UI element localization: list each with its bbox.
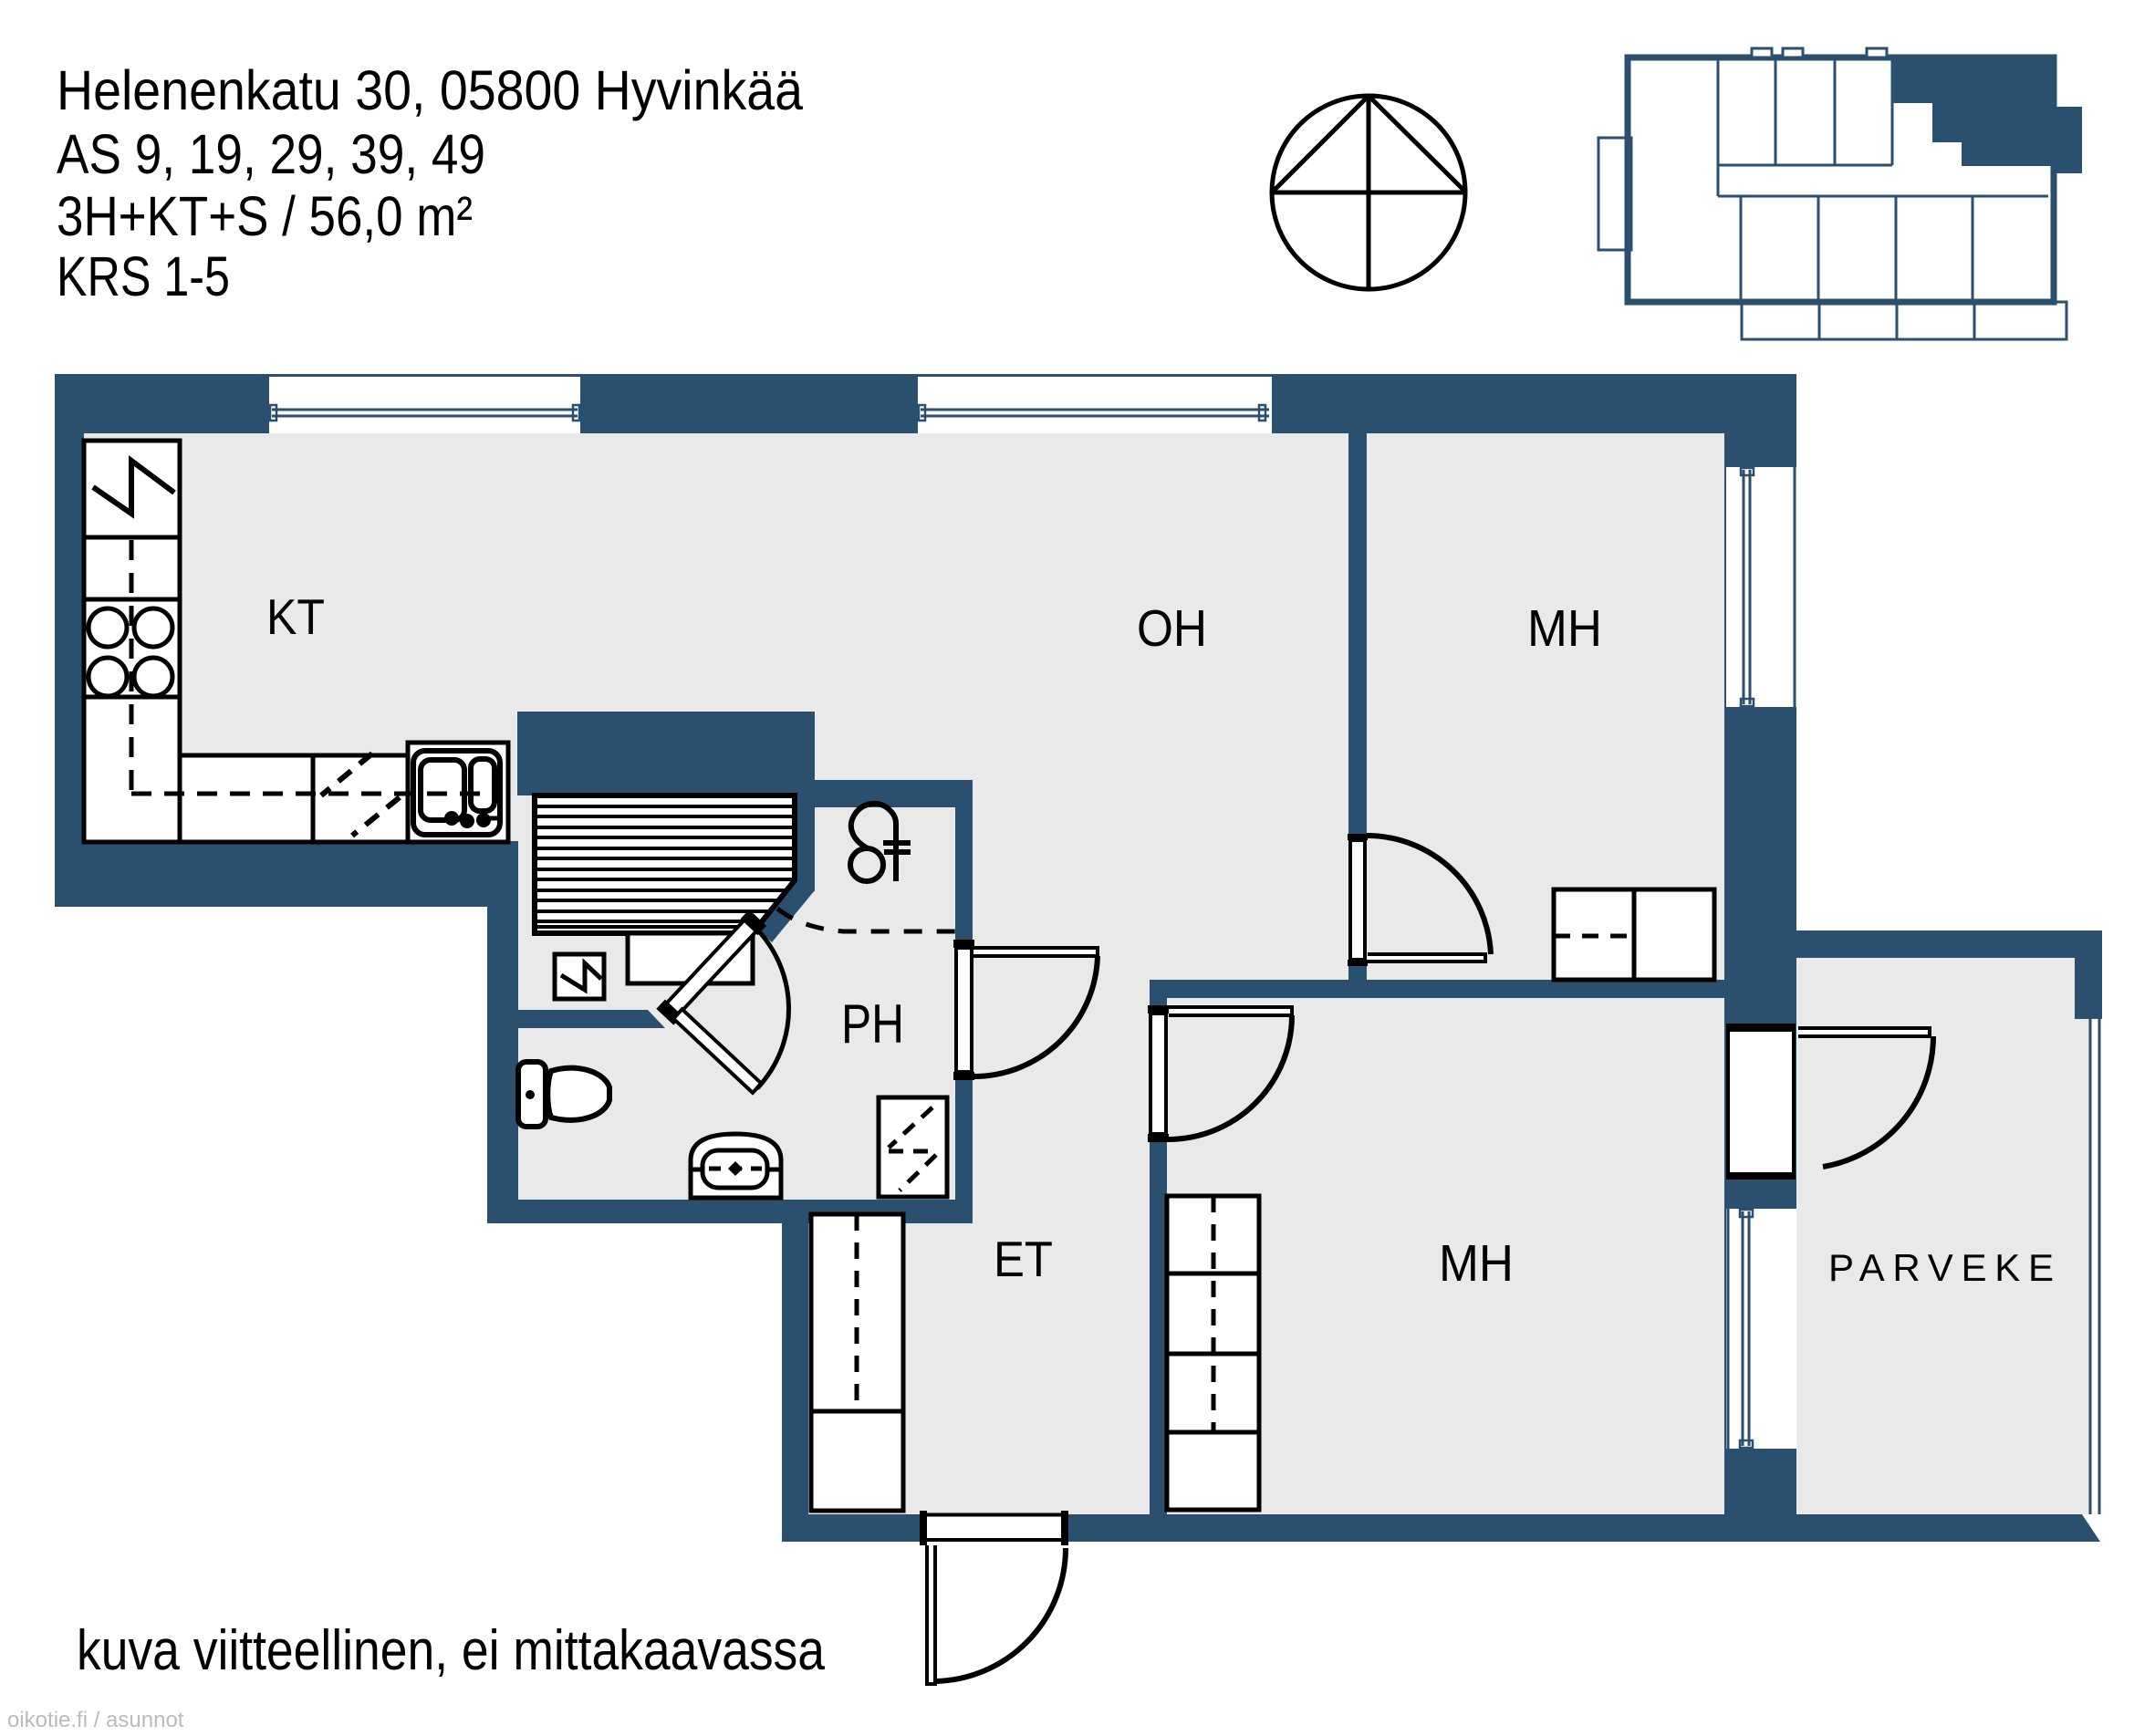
svg-text:OH: OH (1137, 599, 1207, 658)
svg-text:PH: PH (841, 993, 904, 1055)
svg-text:MH: MH (1439, 1234, 1514, 1293)
svg-text:KRS 1-5: KRS 1-5 (57, 245, 230, 307)
svg-text:Helenenkatu 30, 05800 Hyvinkää: Helenenkatu 30, 05800 Hyvinkää (57, 59, 803, 121)
svg-text:kuva viitteellinen, ei mittaka: kuva viitteellinen, ei mittakaavassa (77, 1619, 825, 1682)
svg-text:AS 9, 19, 29, 39, 49: AS 9, 19, 29, 39, 49 (57, 123, 485, 185)
svg-text:oikotie.fi / asunnot: oikotie.fi / asunnot (7, 1708, 184, 1732)
svg-text:3H+KT+S / 56,0 m²: 3H+KT+S / 56,0 m² (57, 185, 473, 247)
svg-text:PARVEKE: PARVEKE (1828, 1246, 2054, 1289)
svg-text:KT: KT (266, 588, 325, 645)
svg-text:MH: MH (1527, 599, 1602, 658)
svg-text:ET: ET (994, 1231, 1053, 1287)
